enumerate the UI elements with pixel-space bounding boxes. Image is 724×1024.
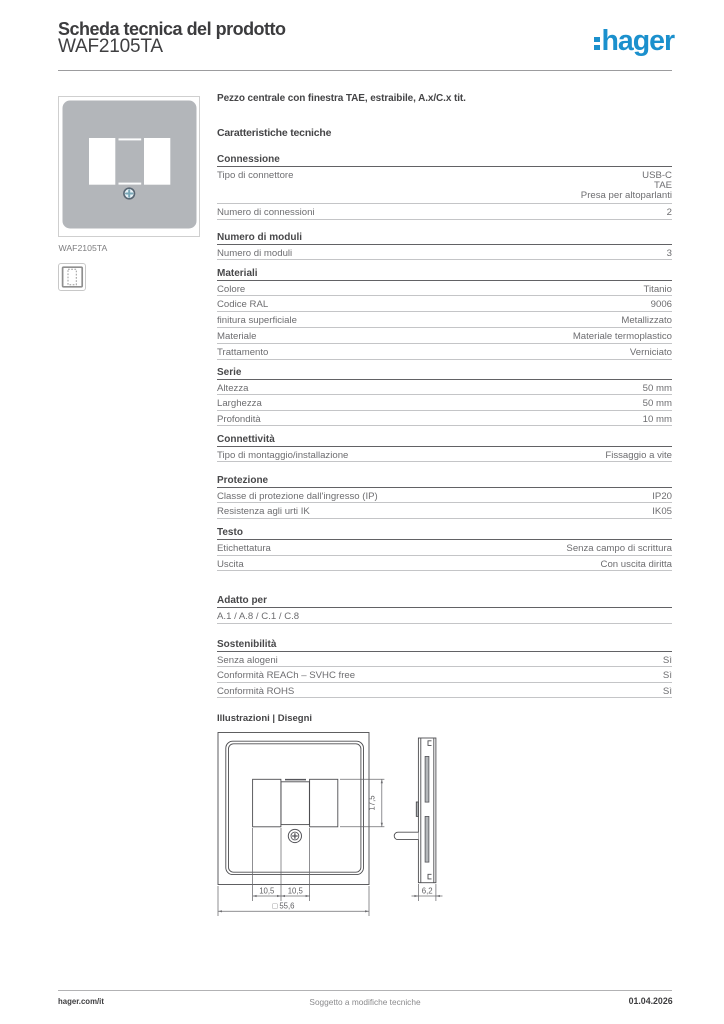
svg-text:10,5: 10,5 bbox=[288, 886, 304, 895]
svg-text:10,5: 10,5 bbox=[259, 886, 275, 895]
svg-text:□ 55,6: □ 55,6 bbox=[272, 902, 294, 911]
svg-text:6,2: 6,2 bbox=[422, 886, 433, 895]
svg-text:17,5: 17,5 bbox=[368, 795, 377, 811]
